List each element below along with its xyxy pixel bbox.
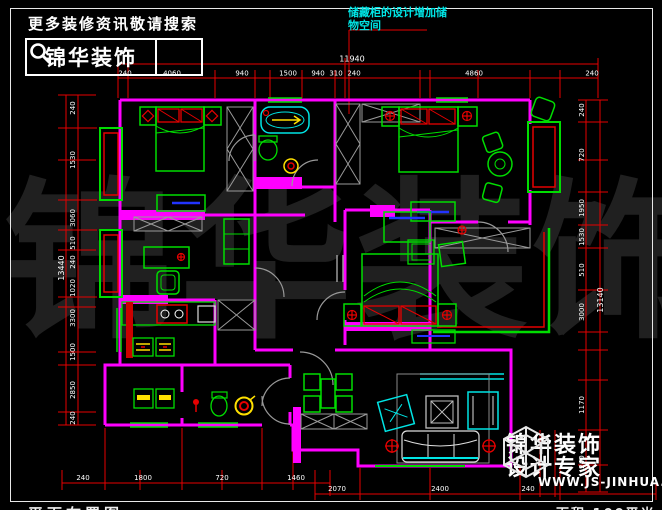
bathtub-arrow-icon <box>272 116 300 124</box>
flower-icon <box>177 253 185 261</box>
svg-text:2070: 2070 <box>328 485 346 493</box>
svg-text:720: 720 <box>215 474 228 482</box>
svg-text:1500: 1500 <box>279 70 297 78</box>
search-icon[interactable] <box>155 40 201 74</box>
svg-text:510: 510 <box>69 236 77 249</box>
plant-icon <box>458 226 466 234</box>
dining-set <box>304 374 352 412</box>
note-line1: 储藏柜的设计增加储 <box>348 6 447 19</box>
faucet-icon <box>193 399 199 405</box>
dim-left-total: 13440 <box>57 255 66 280</box>
design-note: 储藏柜的设计增加储 物空间 <box>348 6 447 32</box>
svg-text:1800: 1800 <box>134 474 152 482</box>
svg-text:240: 240 <box>578 103 586 116</box>
area-label: 面积 100平米 <box>556 503 656 510</box>
logo-website: WWW.JS-JINHUA.COM <box>538 475 662 489</box>
toilet-icon <box>259 140 277 160</box>
svg-text:1020: 1020 <box>69 279 77 297</box>
svg-text:240: 240 <box>76 474 89 482</box>
svg-text:1170: 1170 <box>578 396 586 414</box>
svg-text:240: 240 <box>69 255 77 268</box>
svg-text:1500: 1500 <box>69 343 77 361</box>
svg-text:310: 310 <box>329 70 342 78</box>
search-hint-text: 更多装修资讯敬请搜索 <box>28 13 198 34</box>
watermark-text: 锦华装饰 <box>4 162 662 363</box>
svg-text:240: 240 <box>69 101 77 114</box>
search-box[interactable]: 锦华装饰 <box>25 38 203 76</box>
tv-icon <box>431 401 453 423</box>
bathroom2-fixtures <box>134 389 255 416</box>
svg-text:1530: 1530 <box>578 228 586 246</box>
logo-cube-icon <box>500 424 552 480</box>
svg-text:3300: 3300 <box>69 309 77 327</box>
svg-text:4860: 4860 <box>465 70 483 78</box>
svg-text:2400: 2400 <box>431 485 449 493</box>
dim-right-total: 13140 <box>596 287 605 312</box>
svg-text:720: 720 <box>578 148 586 161</box>
dim-top-total: 11940 <box>339 55 364 64</box>
svg-text:1950: 1950 <box>578 199 586 217</box>
cad-floorplan-canvas: 锦华装饰 11940 240 4060 940 1500 940 310 240… <box>0 0 662 510</box>
svg-text:510: 510 <box>578 263 586 276</box>
svg-text:3000: 3000 <box>578 303 586 321</box>
svg-text:1460: 1460 <box>287 474 305 482</box>
svg-text:940: 940 <box>235 70 248 78</box>
toilet-icon <box>211 396 227 416</box>
note-line2: 物空间 <box>348 19 447 32</box>
svg-text:240: 240 <box>69 411 77 424</box>
svg-text:1530: 1530 <box>69 151 77 169</box>
svg-text:240: 240 <box>347 70 360 78</box>
drawing-title: 平面布置图 <box>28 503 123 510</box>
svg-text:240: 240 <box>585 70 598 78</box>
svg-text:940: 940 <box>311 70 324 78</box>
svg-text:2850: 2850 <box>69 381 77 399</box>
washer-icon <box>236 398 253 415</box>
svg-text:3060: 3060 <box>69 209 77 227</box>
